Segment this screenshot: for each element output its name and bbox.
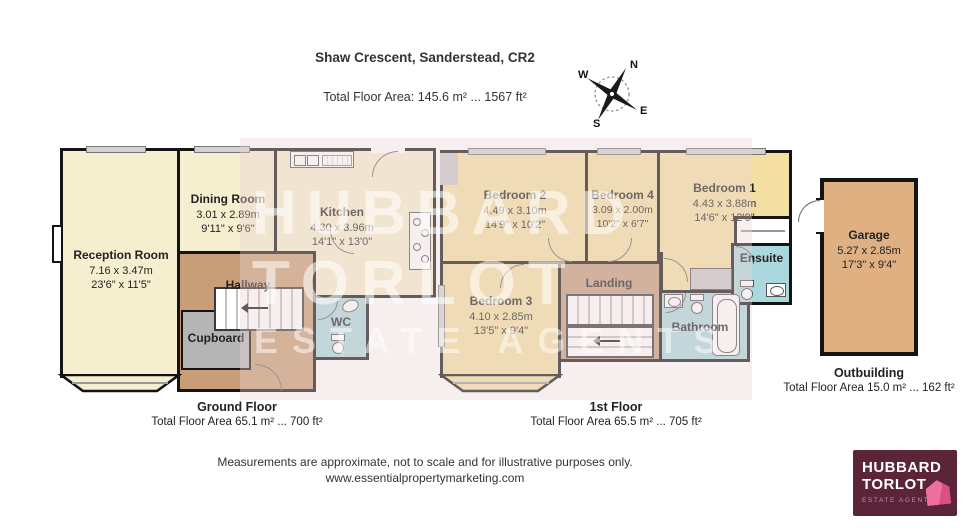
stairs-first-arrow-icon (600, 340, 620, 342)
bedroom1-window (686, 148, 766, 155)
compass-rose-icon: N W E S (576, 54, 652, 130)
compass-s-label: S (593, 118, 600, 130)
bedroom1-name: Bedroom 1 (659, 181, 790, 197)
garage-metric: 5.27 x 2.85m (821, 244, 917, 259)
dining-room-metric: 3.01 x 2.89m (178, 208, 278, 223)
ground-floor-caption: Ground Floor Total Floor Area 65.1 m² ..… (107, 400, 367, 428)
reception-room-name: Reception Room (61, 248, 181, 264)
hob-icon (409, 212, 431, 270)
garage-name: Garage (821, 228, 917, 244)
wc-toilet-icon (331, 334, 345, 354)
outbuilding-title: Outbuilding (763, 366, 975, 380)
kitchen-imperial: 14'1" x 13'0" (272, 235, 412, 250)
stairs-first-lower (566, 326, 654, 358)
ground-floor-area: Total Floor Area 65.1 m² ... 700 ft² (107, 416, 367, 428)
ground-floor-title: Ground Floor (107, 400, 367, 414)
reception-room-label: Reception Room 7.16 x 3.47m 23'6" x 11'5… (61, 248, 181, 293)
bedroom1-imperial: 14'6" x 12'9" (659, 211, 790, 226)
first-floor-area: Total Floor Area 65.5 m² ... 705 ft² (486, 416, 746, 428)
bedroom4-name: Bedroom 4 (584, 188, 661, 204)
bathroom-label: Bathroom (658, 320, 742, 336)
landing-label: Landing (556, 276, 662, 292)
bedroom3-metric: 4.10 x 2.85m (443, 310, 559, 325)
bedroom4-window (597, 148, 641, 155)
wc-label: WC (314, 315, 368, 331)
bathroom-toilet-icon (690, 294, 704, 314)
stairs-first-upper (566, 294, 654, 326)
reception-room-imperial: 23'6" x 11'5" (61, 278, 181, 293)
bathroom-name: Bathroom (658, 320, 742, 336)
ensuite-name: Ensuite (731, 251, 792, 267)
stairs-ground-arrow-icon (248, 307, 268, 309)
garage-label: Garage 5.27 x 2.85m 17'3" x 9'4" (821, 228, 917, 273)
compass-n-label: N (630, 59, 638, 71)
cupboard-label: Cupboard (182, 331, 250, 347)
garage-door-arc (798, 200, 820, 222)
page-title: Shaw Crescent, Sanderstead, CR2 (0, 50, 850, 65)
dining-room-label: Dining Room 3.01 x 2.89m 9'11" x 9'6" (178, 192, 278, 237)
marketing-url: www.essentialpropertymarketing.com (0, 471, 850, 485)
cupboard-name: Cupboard (182, 331, 250, 347)
outbuilding-caption: Outbuilding Total Floor Area 15.0 m² ...… (763, 366, 975, 394)
logo-line1: HUBBARD (862, 459, 957, 476)
bedroom2-imperial: 14'9" x 10'2" (446, 218, 584, 233)
kitchen-sink-icon (290, 151, 354, 168)
disclaimer-text: Measurements are approximate, not to sca… (0, 455, 850, 469)
reception-bay-window (58, 374, 182, 394)
ensuite-toilet-icon (740, 280, 754, 300)
bedroom2-window (468, 148, 546, 155)
bedroom4-metric: 3.09 x 2.00m (584, 204, 661, 218)
total-floor-area: Total Floor Area: 145.6 m² ... 1567 ft² (0, 90, 850, 104)
bedroom1-cabinet (690, 268, 732, 290)
garage-imperial: 17'3" x 9'4" (821, 258, 917, 273)
hallway-label: Hallway (190, 278, 306, 294)
bedroom2-label: Bedroom 2 4.49 x 3.10m 14'9" x 10'2" (446, 188, 584, 233)
bedroom2-corner-window (440, 153, 458, 185)
dining-window (194, 146, 250, 153)
reception-window (86, 146, 146, 153)
dining-room-imperial: 9'11" x 9'6" (178, 222, 278, 237)
hallway-name: Hallway (190, 278, 306, 294)
kitchen-metric: 4.30 x 3.96m (272, 221, 412, 236)
first-floor-title: 1st Floor (486, 400, 746, 414)
ensuite-label: Ensuite (731, 251, 792, 267)
ensuite-basin-icon (766, 283, 786, 297)
wc-name: WC (314, 315, 368, 331)
bedroom1-metric: 4.43 x 3.88m (659, 197, 790, 212)
bedroom3-imperial: 13'5" x 9'4" (443, 324, 559, 339)
kitchen-label: Kitchen 4.30 x 3.96m 14'1" x 13'0" (272, 205, 412, 250)
floorplan-page: Shaw Crescent, Sanderstead, CR2 Total Fl… (0, 0, 980, 530)
compass-w-label: W (578, 69, 589, 81)
reception-room-metric: 7.16 x 3.47m (61, 264, 181, 279)
bedroom3-name: Bedroom 3 (443, 294, 559, 310)
outbuilding-area: Total Floor Area 15.0 m² ... 162 ft² (763, 382, 975, 394)
landing-name: Landing (556, 276, 662, 292)
bedroom3-label: Bedroom 3 4.10 x 2.85m 13'5" x 9'4" (443, 294, 559, 339)
bedroom4-label: Bedroom 4 3.09 x 2.00m 10'2" x 6'7" (584, 188, 661, 232)
dining-room-name: Dining Room (178, 192, 278, 208)
bedroom1-label: Bedroom 1 4.43 x 3.88m 14'6" x 12'9" (659, 181, 790, 226)
bedroom3-bay-window (438, 374, 563, 394)
kitchen-name: Kitchen (272, 205, 412, 221)
bedroom2-metric: 4.49 x 3.10m (446, 204, 584, 219)
bedroom2-name: Bedroom 2 (446, 188, 584, 204)
hubbard-torlot-logo: HUBBARD TORLOT ESTATE AGENTS (853, 450, 957, 516)
bedroom4-imperial: 10'2" x 6'7" (584, 218, 661, 232)
compass-e-label: E (640, 105, 647, 117)
first-floor-caption: 1st Floor Total Floor Area 65.5 m² ... 7… (486, 400, 746, 428)
